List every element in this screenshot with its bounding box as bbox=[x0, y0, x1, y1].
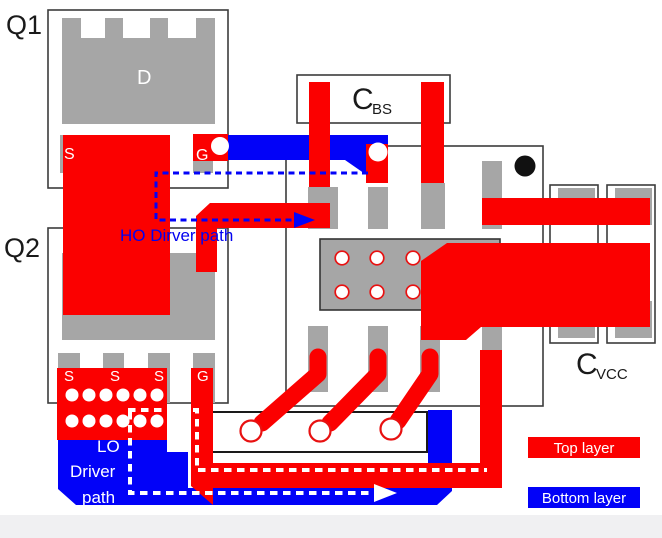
thermal-via bbox=[370, 285, 384, 299]
connector-hole bbox=[310, 421, 331, 442]
source-via bbox=[100, 389, 113, 402]
source-via bbox=[100, 415, 113, 428]
lo-driver-path-label-line3: path bbox=[82, 488, 115, 507]
source-via bbox=[151, 415, 164, 428]
cbs-left-trace bbox=[309, 82, 330, 187]
ho-bottom-trace bbox=[225, 135, 388, 160]
thermal-via bbox=[335, 251, 349, 265]
cbs-right-trace bbox=[421, 82, 444, 183]
q1-gate-via bbox=[211, 137, 229, 155]
q2-gate-label: G bbox=[197, 368, 209, 385]
source-via bbox=[134, 415, 147, 428]
top-layer-label: Top layer bbox=[554, 440, 615, 457]
q1-drain-label: D bbox=[137, 67, 151, 89]
q1-drain-tab bbox=[105, 18, 123, 39]
lo-gate-trace bbox=[196, 463, 502, 488]
connector-hole bbox=[381, 419, 402, 440]
q2-label: Q2 bbox=[4, 233, 40, 263]
source-via bbox=[66, 389, 79, 402]
q2-source-label-1: S bbox=[64, 368, 74, 385]
power-plane bbox=[421, 243, 650, 340]
ic-pin-pad bbox=[368, 187, 388, 229]
switch-node-plane bbox=[63, 135, 170, 315]
ho-trace-via bbox=[369, 143, 388, 162]
source-via bbox=[66, 415, 79, 428]
pcb-layout-figure: Top layer Bottom layer Q1 Q2 D S G C BS … bbox=[0, 0, 662, 538]
q1-drain-tab bbox=[150, 18, 168, 39]
cbs-symbol: C bbox=[352, 83, 374, 116]
source-via bbox=[83, 415, 96, 428]
q1-source-label: S bbox=[64, 146, 75, 163]
source-via bbox=[83, 389, 96, 402]
q1-drain-tab bbox=[62, 18, 81, 39]
cvcc-subscript: VCC bbox=[596, 366, 628, 383]
bottom-layer-label: Bottom layer bbox=[542, 490, 626, 507]
ho-driver-path-label: HO Dirver path bbox=[120, 226, 233, 245]
lo-driver-path-label-line1: LO bbox=[97, 437, 120, 456]
cvcc-symbol: C bbox=[576, 348, 598, 381]
ic-pin1-dot bbox=[515, 156, 536, 177]
q1-gate-label: G bbox=[196, 147, 208, 164]
thermal-via bbox=[406, 285, 420, 299]
vcc-top-trace bbox=[482, 198, 650, 225]
q1-label: Q1 bbox=[6, 10, 42, 40]
lo-driver-path-label-line2: Driver bbox=[70, 462, 116, 481]
footer-strip bbox=[0, 515, 662, 538]
thermal-via bbox=[406, 251, 420, 265]
source-via bbox=[117, 415, 130, 428]
source-via bbox=[134, 389, 147, 402]
lo-pin-trace bbox=[480, 350, 502, 466]
source-via bbox=[117, 389, 130, 402]
q1-drain-tab bbox=[196, 18, 215, 39]
q2-source-label-3: S bbox=[154, 368, 164, 385]
thermal-via bbox=[335, 285, 349, 299]
cbs-subscript: BS bbox=[372, 101, 392, 118]
source-via bbox=[151, 389, 164, 402]
connector-hole bbox=[241, 421, 262, 442]
q2-source-label-2: S bbox=[110, 368, 120, 385]
thermal-via bbox=[370, 251, 384, 265]
ic-pin-pad bbox=[421, 183, 445, 229]
